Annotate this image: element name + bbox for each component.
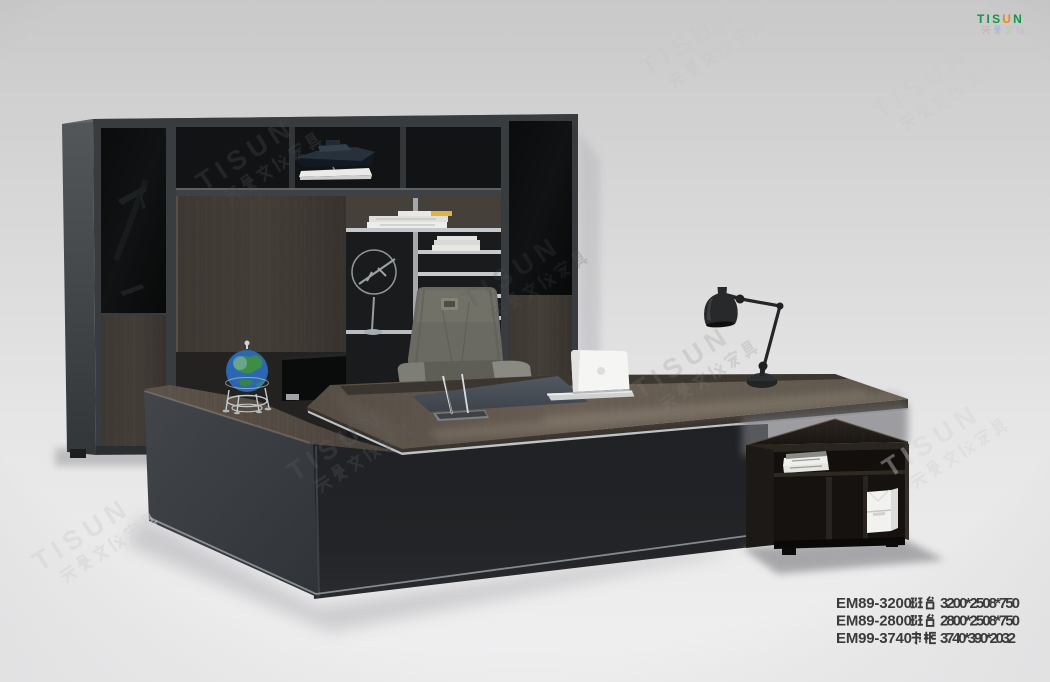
svg-text:3200*2508*750: 3200*2508*750 bbox=[940, 595, 1020, 612]
svg-text:EM89-2800: EM89-2800 bbox=[836, 613, 912, 630]
svg-text:EM89-3200: EM89-3200 bbox=[836, 595, 912, 612]
svg-text:EM99-3740: EM99-3740 bbox=[836, 630, 912, 647]
svg-text:3740*390*2032: 3740*390*2032 bbox=[940, 630, 1016, 647]
svg-text:2800*2508*750: 2800*2508*750 bbox=[940, 613, 1020, 630]
svg-text:TISUN: TISUN bbox=[977, 12, 1024, 26]
